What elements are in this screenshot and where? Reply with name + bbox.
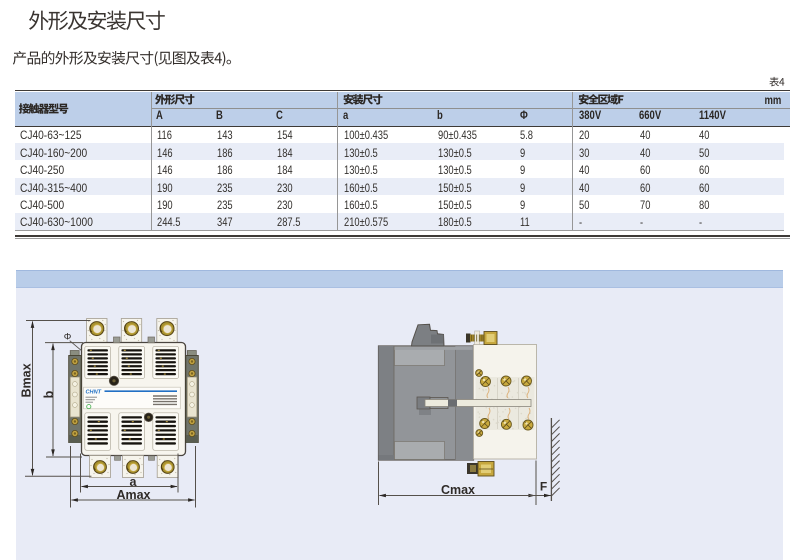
svg-text:Cmax: Cmax [441, 483, 475, 497]
svg-text:Amax: Amax [116, 488, 150, 502]
svg-text:a: a [130, 475, 138, 489]
svg-text:Φ: Φ [64, 331, 72, 342]
svg-text:Bmax: Bmax [19, 363, 33, 397]
svg-text:CHNT: CHNT [86, 389, 102, 395]
svg-text:b: b [42, 390, 56, 398]
svg-text:F: F [540, 480, 547, 494]
